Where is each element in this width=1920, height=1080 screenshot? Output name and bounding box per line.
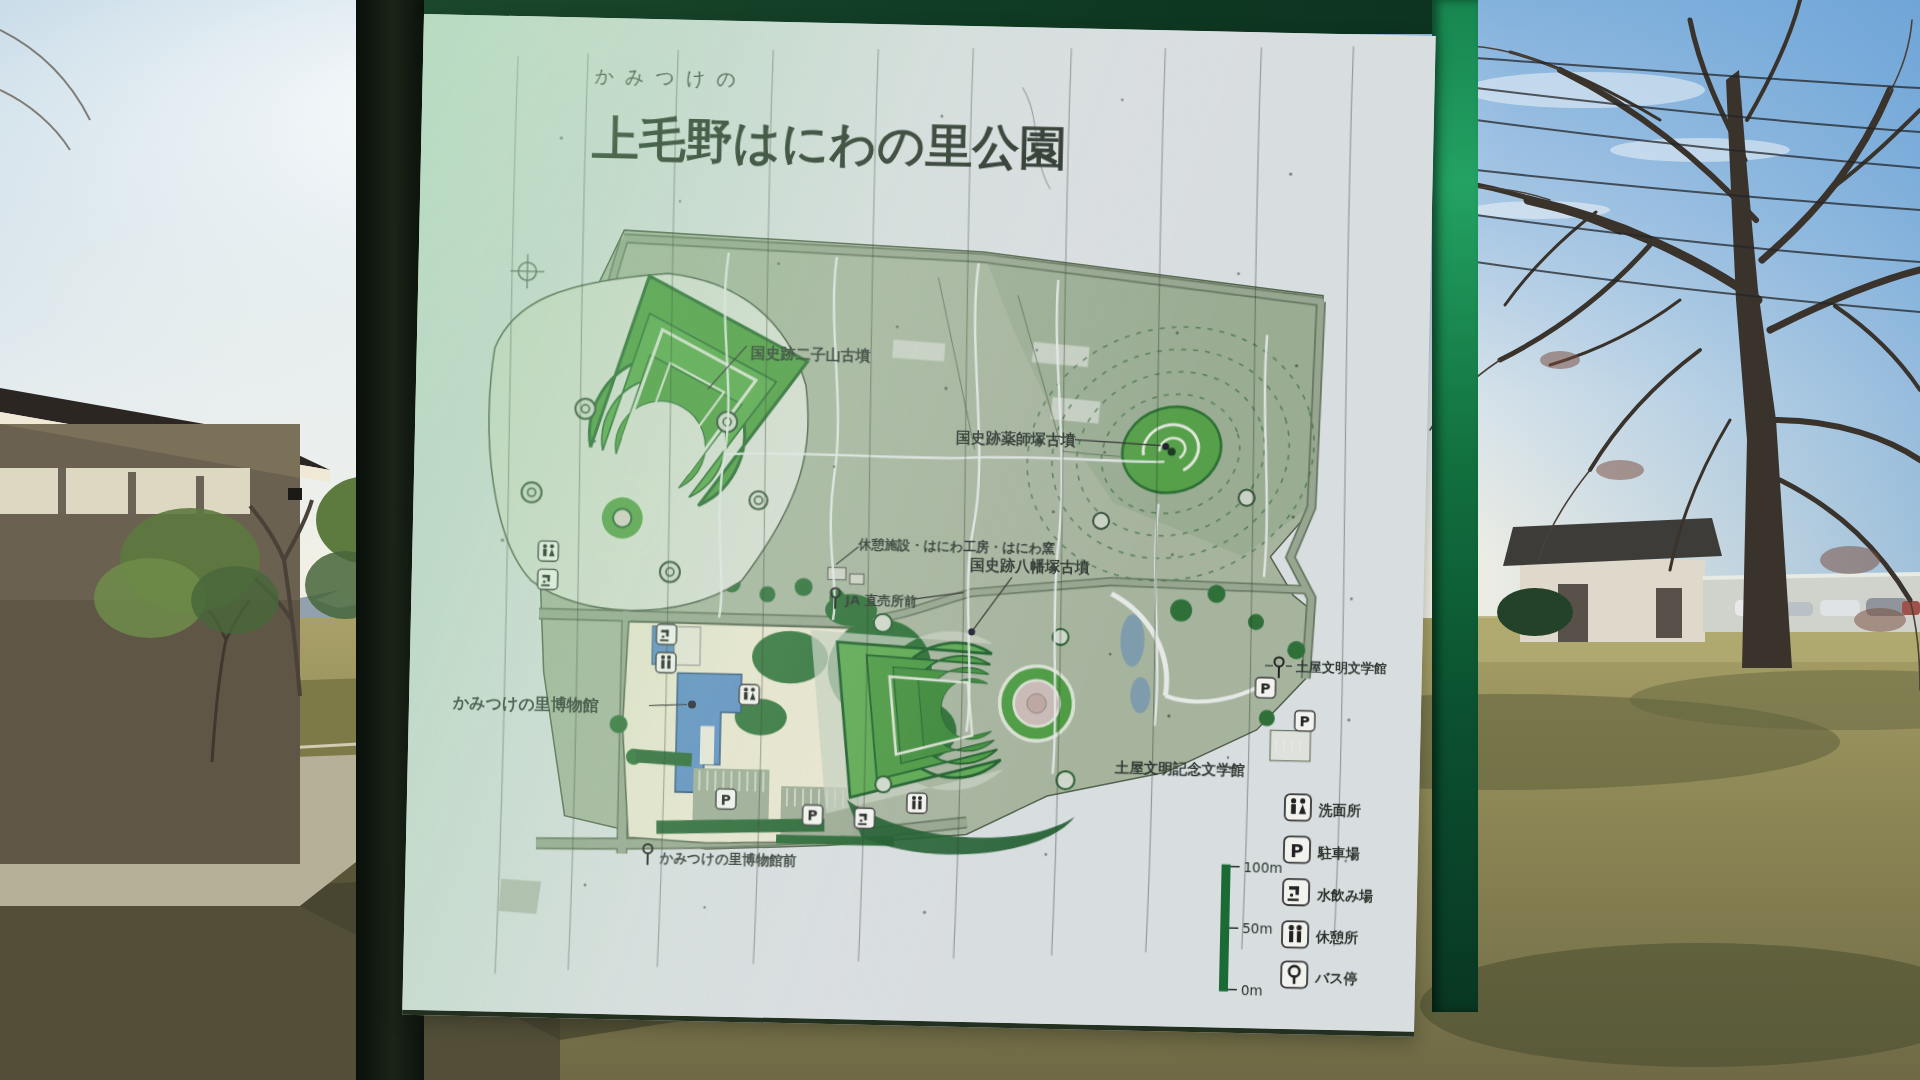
- fountain-icon: [537, 569, 557, 590]
- legend-label: バス停: [1314, 969, 1358, 986]
- legend-label: 洗面所: [1318, 802, 1361, 819]
- label-hachimanzuka-kofun: 国史跡八幡塚古墳: [970, 556, 1090, 577]
- toilet-icon: [538, 541, 558, 562]
- parking-icon: [1255, 677, 1275, 698]
- park-map: P: [402, 14, 1435, 1032]
- label-museum: かみつけの里博物館: [452, 692, 599, 714]
- legend-label: 休憩所: [1315, 929, 1358, 946]
- scale-0m: 0m: [1241, 982, 1263, 999]
- scale-100m: 100m: [1243, 859, 1282, 876]
- legend-label: 水飲み場: [1316, 887, 1374, 904]
- label-yakushizuka-kofun: 国史跡薬師塚古墳: [956, 429, 1076, 450]
- toilet-icon: [1285, 794, 1312, 821]
- label-museum-busstop: かみつけの里博物館前: [658, 849, 796, 868]
- busstop-icon: [1281, 961, 1308, 988]
- rest-icon: [907, 793, 927, 814]
- scale-50m: 50m: [1242, 920, 1273, 937]
- parking-icon: [1295, 711, 1315, 732]
- rest-icon: [656, 652, 676, 673]
- parking-icon: [716, 789, 736, 810]
- fountain-icon: [1283, 879, 1310, 906]
- sign-post-right: [1432, 0, 1478, 1012]
- parking-icon: [802, 805, 822, 826]
- fountain-icon: [656, 624, 676, 645]
- park-sign-board: P: [402, 14, 1436, 1037]
- parking-icon: [1284, 836, 1311, 863]
- title-furigana: かみつけの: [594, 64, 747, 89]
- page-title: 上毛野はにわの里公園: [592, 111, 1067, 177]
- label-kinen-bungakukan: 土屋文明記念文学館: [1115, 758, 1246, 778]
- fountain-icon: [854, 808, 874, 829]
- label-ja-busstop: JA 直売所前: [844, 592, 917, 609]
- label-futagoyama-kofun: 国史跡二子山古墳: [750, 344, 870, 365]
- photo-of-park-map-sign: P: [0, 0, 1920, 1080]
- label-bungakukan-busstop: 土屋文明文学館: [1296, 659, 1387, 676]
- toilet-icon: [739, 684, 759, 705]
- rest-icon: [1282, 921, 1309, 948]
- legend-label: 駐車場: [1317, 844, 1360, 861]
